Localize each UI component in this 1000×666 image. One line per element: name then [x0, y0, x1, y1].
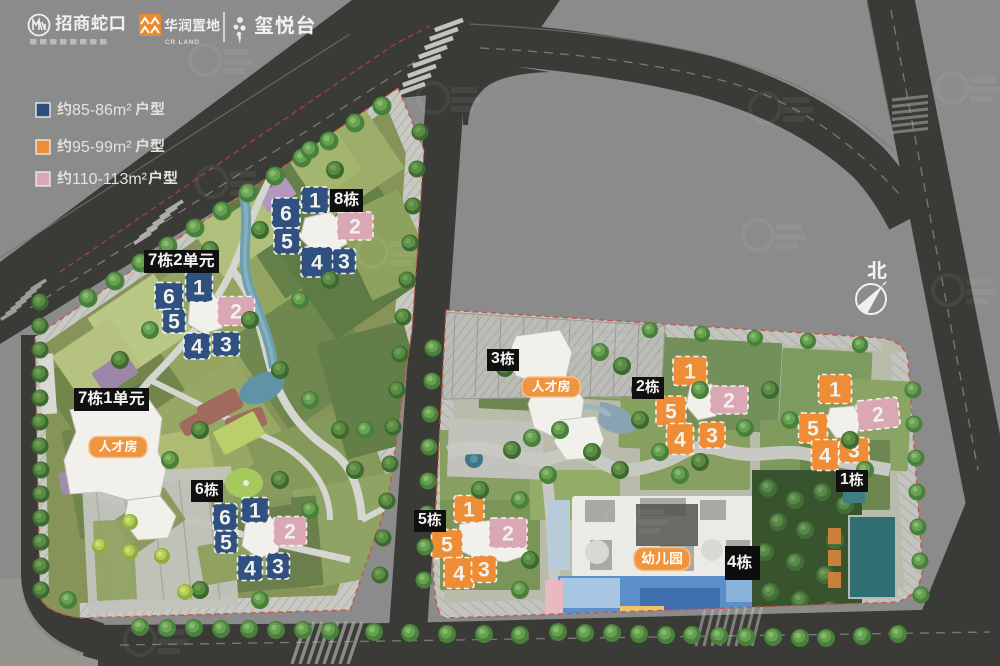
- svg-text:2: 2: [636, 378, 645, 395]
- svg-text:1: 1: [193, 277, 205, 300]
- svg-text:1: 1: [840, 471, 849, 488]
- svg-text:1: 1: [463, 499, 475, 522]
- svg-text:3: 3: [220, 334, 232, 357]
- svg-text:2: 2: [349, 216, 361, 239]
- svg-text:5: 5: [220, 532, 232, 555]
- svg-text:110-113m²: 110-113m²: [72, 171, 148, 188]
- svg-text:6: 6: [219, 507, 231, 530]
- svg-text:1: 1: [829, 379, 841, 402]
- svg-text:2: 2: [230, 301, 242, 324]
- svg-text:2: 2: [502, 523, 514, 546]
- svg-text:5: 5: [441, 534, 453, 557]
- svg-text:2: 2: [173, 250, 182, 269]
- svg-text:8: 8: [334, 189, 343, 208]
- svg-text:85-86m²: 85-86m²: [72, 102, 132, 119]
- svg-text:95-99m²: 95-99m²: [72, 139, 132, 156]
- svg-text:1: 1: [103, 388, 112, 407]
- svg-text:4: 4: [674, 429, 686, 452]
- svg-text:5: 5: [807, 418, 819, 441]
- svg-text:2: 2: [284, 521, 296, 544]
- svg-text:4: 4: [191, 336, 203, 359]
- svg-text:3: 3: [491, 350, 500, 367]
- svg-text:3: 3: [478, 559, 490, 582]
- svg-text:4: 4: [311, 252, 323, 275]
- svg-text:1: 1: [249, 500, 261, 523]
- svg-text:5: 5: [418, 511, 427, 528]
- svg-text:2: 2: [723, 390, 735, 413]
- svg-text:2: 2: [871, 403, 885, 427]
- svg-text:4: 4: [244, 558, 256, 581]
- svg-text:3: 3: [272, 556, 284, 579]
- svg-text:5: 5: [281, 231, 293, 254]
- svg-text:6: 6: [163, 286, 175, 309]
- svg-text:3: 3: [338, 251, 350, 274]
- svg-text:1: 1: [309, 190, 321, 213]
- svg-text:3: 3: [706, 425, 718, 448]
- svg-text:5: 5: [168, 311, 180, 334]
- svg-text:4: 4: [727, 552, 737, 571]
- svg-text:4: 4: [819, 445, 831, 468]
- svg-text:1: 1: [684, 361, 696, 384]
- svg-text:6: 6: [195, 481, 204, 498]
- svg-text:CR LAND: CR LAND: [165, 39, 200, 46]
- svg-text:7: 7: [78, 388, 87, 407]
- svg-text:4: 4: [453, 563, 465, 586]
- svg-text:6: 6: [280, 203, 292, 226]
- svg-text:7: 7: [148, 250, 157, 269]
- svg-text:5: 5: [665, 401, 677, 424]
